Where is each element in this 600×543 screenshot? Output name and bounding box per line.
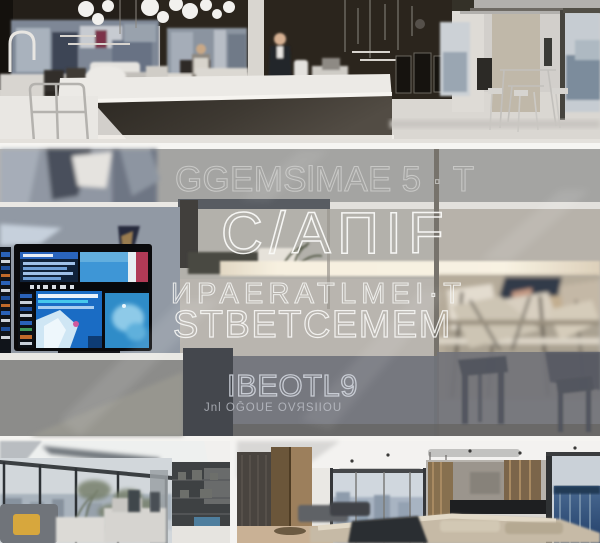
svg-text:Jnl OĞOUE OVЯSIIOU: Jnl OĞOUE OVЯSIIOU <box>204 401 342 414</box>
svg-text:IBEOTL9: IBEOTL9 <box>227 368 358 403</box>
svg-text:GGEMSlMAE 5 · T: GGEMSlMAE 5 · T <box>175 160 474 199</box>
svg-text:C/AΠIF: C/AΠIF <box>221 201 450 266</box>
svg-text:STBETCEMEM: STBETCEMEM <box>173 304 452 346</box>
